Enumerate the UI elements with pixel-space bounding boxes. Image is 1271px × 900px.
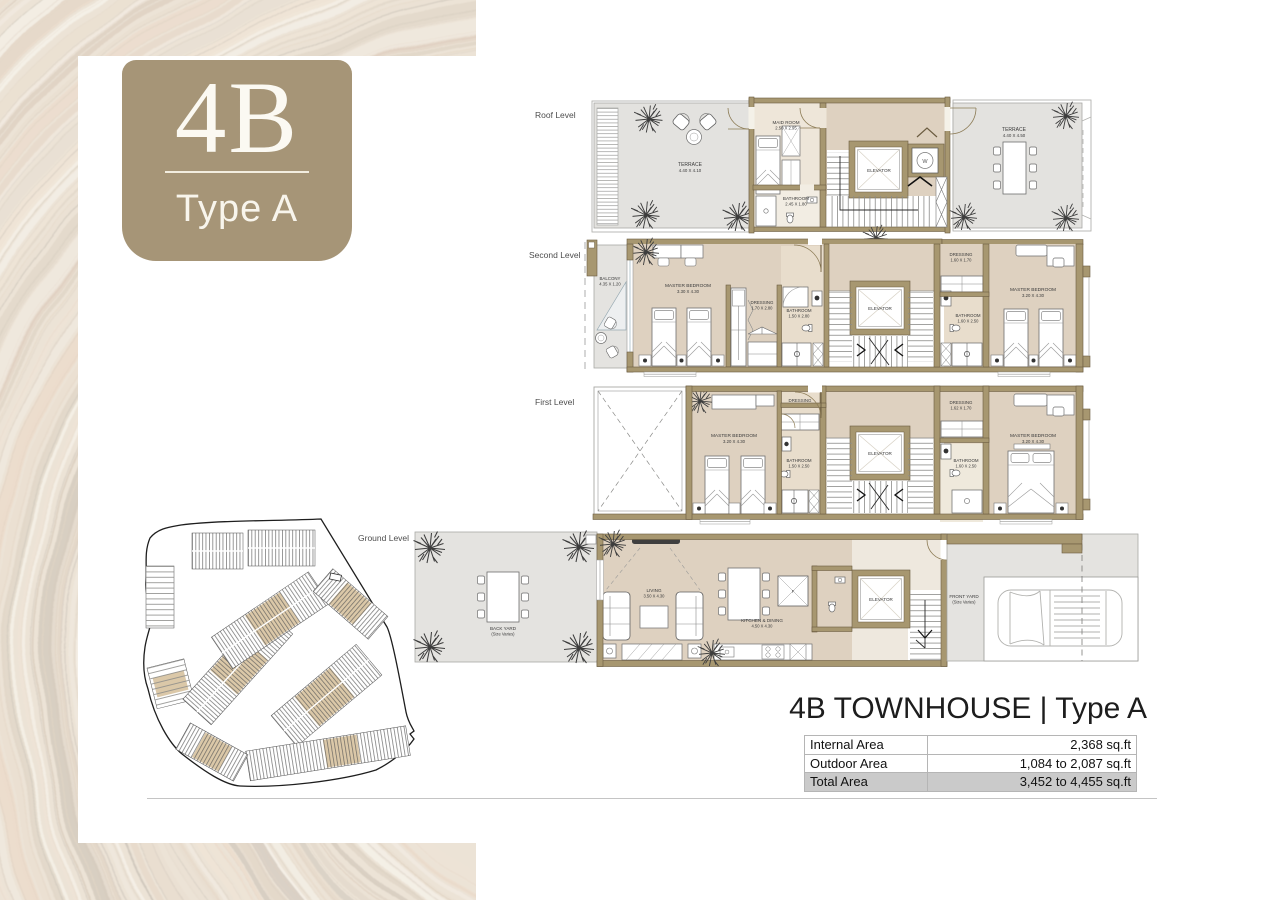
- svg-text:2.50 X 2.95: 2.50 X 2.95: [775, 126, 797, 131]
- svg-text:BATHROOM: BATHROOM: [953, 458, 978, 463]
- svg-text:LIVING: LIVING: [646, 588, 661, 593]
- svg-text:(Size Varies): (Size Varies): [491, 632, 515, 637]
- svg-text:BALCONY: BALCONY: [600, 276, 621, 281]
- svg-text:1.50 X 2.80: 1.50 X 2.80: [789, 314, 811, 319]
- svg-text:FRONT YARD: FRONT YARD: [949, 594, 979, 599]
- svg-text:MAID ROOM: MAID ROOM: [772, 120, 799, 125]
- svg-text:BATHROOM: BATHROOM: [786, 308, 811, 313]
- svg-text:KITCHEN & DINING: KITCHEN & DINING: [741, 618, 783, 623]
- svg-text:3.50 X 4.30: 3.50 X 4.30: [644, 594, 666, 599]
- svg-text:DRESSING: DRESSING: [789, 398, 813, 403]
- svg-text:3.20 X 4.30: 3.20 X 4.30: [723, 439, 746, 444]
- svg-text:4.40 X 4.50: 4.40 X 4.50: [1003, 133, 1026, 138]
- svg-text:4.35 X 1.20: 4.35 X 1.20: [599, 282, 621, 287]
- svg-text:1.62 X 1.70: 1.62 X 1.70: [951, 406, 973, 411]
- svg-text:1.60 X 2.50: 1.60 X 2.50: [956, 464, 978, 469]
- svg-text:F: F: [792, 589, 795, 594]
- svg-text:ELEVATOR: ELEVATOR: [869, 597, 893, 602]
- svg-text:3.20 X 4.30: 3.20 X 4.30: [1022, 439, 1045, 444]
- svg-text:2.45 X 1.80: 2.45 X 1.80: [785, 202, 807, 207]
- svg-text:(Size Varies): (Size Varies): [952, 600, 976, 605]
- svg-text:ELEVATOR: ELEVATOR: [868, 451, 892, 456]
- svg-text:BATHROOM: BATHROOM: [955, 313, 980, 318]
- svg-text:4.40 X 4.10: 4.40 X 4.10: [679, 168, 702, 173]
- svg-text:3.30 X 4.30: 3.30 X 4.30: [677, 289, 700, 294]
- svg-text:BATHROOM: BATHROOM: [786, 458, 811, 463]
- svg-text:BACK YARD: BACK YARD: [490, 626, 517, 631]
- svg-text:1.60 X 2.50: 1.60 X 2.50: [958, 319, 980, 324]
- svg-text:BATHROOM: BATHROOM: [783, 196, 809, 201]
- svg-text:W: W: [922, 159, 928, 165]
- svg-text:ELEVATOR: ELEVATOR: [867, 168, 891, 173]
- svg-text:DRESSING: DRESSING: [950, 252, 974, 257]
- svg-text:1.60 X 1.70: 1.60 X 1.70: [951, 258, 973, 263]
- svg-text:1.70 X 2.80: 1.70 X 2.80: [752, 306, 774, 311]
- svg-text:3.20 X 4.30: 3.20 X 4.30: [1022, 293, 1045, 298]
- svg-text:4.50 X 4.30: 4.50 X 4.30: [752, 624, 774, 629]
- svg-text:ELEVATOR: ELEVATOR: [868, 306, 892, 311]
- svg-text:DRESSING: DRESSING: [950, 400, 974, 405]
- svg-text:1.50 X 2.50: 1.50 X 2.50: [789, 464, 811, 469]
- svg-text:DRESSING: DRESSING: [751, 300, 775, 305]
